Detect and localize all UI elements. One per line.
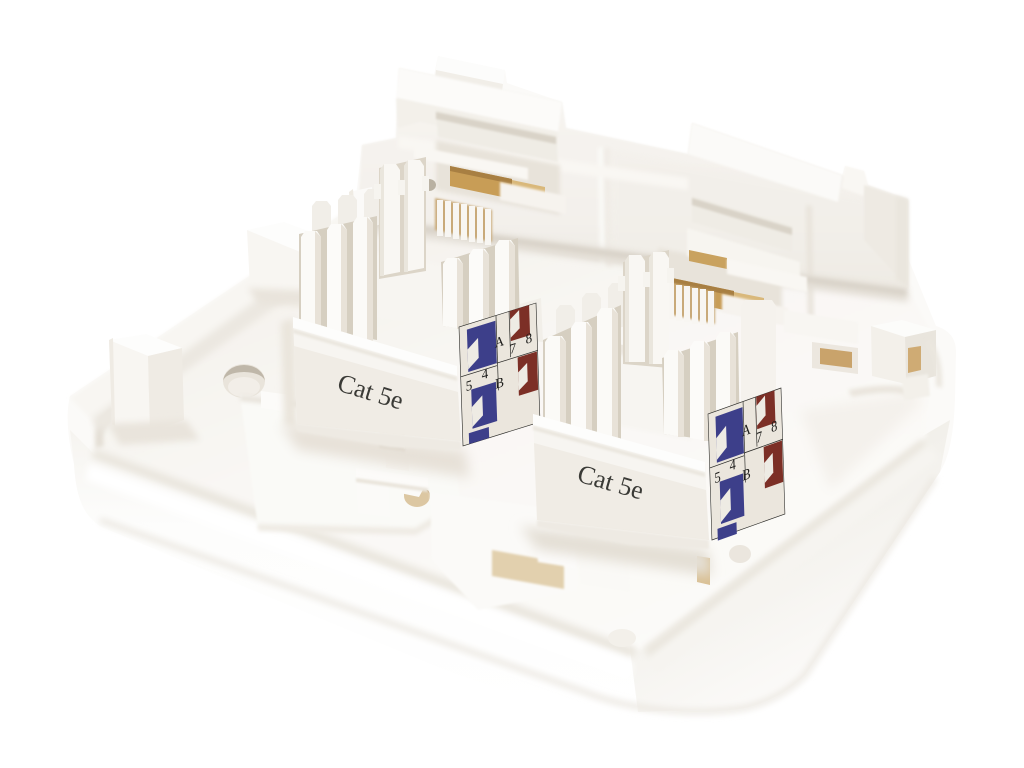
svg-text:8: 8 (525, 331, 532, 348)
svg-text:8: 8 (771, 417, 778, 436)
svg-text:A: A (494, 334, 504, 352)
svg-text:4: 4 (729, 456, 736, 475)
svg-text:B: B (495, 375, 504, 393)
svg-text:5: 5 (714, 468, 721, 487)
svg-text:4: 4 (481, 366, 488, 383)
svg-text:B: B (742, 465, 751, 485)
svg-text:A: A (742, 420, 752, 441)
svg-text:7: 7 (509, 341, 516, 358)
svg-text:7: 7 (756, 428, 763, 447)
svg-text:5: 5 (465, 378, 472, 395)
